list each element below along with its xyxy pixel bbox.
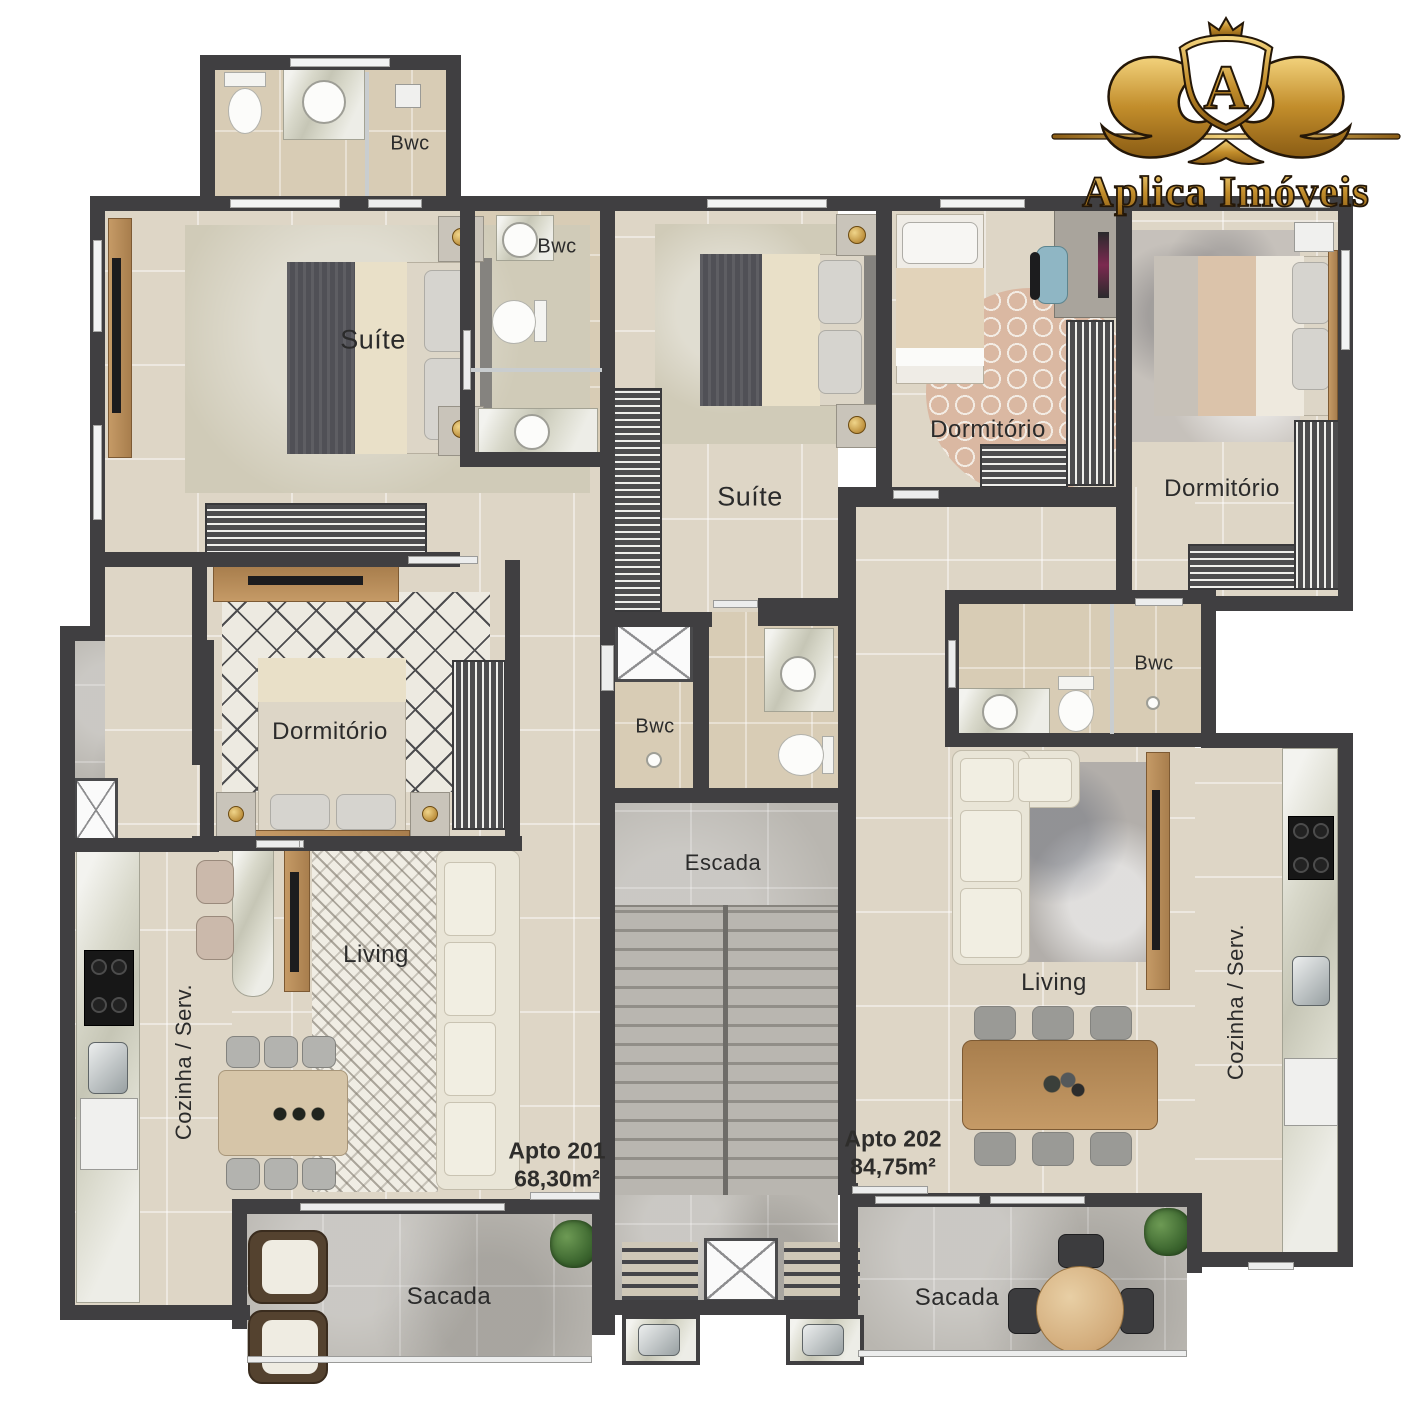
dining-chair (1090, 1006, 1132, 1040)
shower-head-icon (646, 752, 662, 768)
oven-icon (1284, 1058, 1338, 1126)
duct-shaft (74, 778, 118, 842)
wardrobe-dorm-201 (452, 660, 506, 830)
tank-sink-icon (802, 1324, 844, 1356)
brand-logo: A Aplica Imóveis (1048, 14, 1404, 220)
brand-crest-icon: A Aplica Imóveis (1048, 14, 1404, 220)
room-label-bwc: Bwc (390, 133, 429, 156)
toilet-icon (492, 300, 536, 344)
lamp-icon (848, 226, 866, 244)
pillow (1292, 262, 1330, 324)
window (707, 199, 827, 208)
sliding-door (990, 1196, 1085, 1204)
window (93, 425, 102, 520)
room-label-cozinha: Cozinha / Serv. (1223, 924, 1249, 1080)
window (1341, 250, 1350, 350)
shower-glass (1110, 604, 1114, 734)
wall (600, 196, 615, 1196)
room-label-living: Living (1021, 969, 1087, 997)
sofa-cushion (960, 758, 1014, 802)
desk-chair (1036, 246, 1068, 304)
chair-back (1030, 252, 1040, 300)
shower-glass (365, 72, 369, 196)
door (1248, 1262, 1294, 1270)
wall (232, 1199, 247, 1329)
lamp-icon (228, 806, 244, 822)
wall (505, 560, 520, 850)
pillow (270, 794, 330, 830)
kitchen-island-201 (232, 845, 274, 997)
unit-tag-apto-201: Apto 201 68,30m² (508, 1137, 605, 1192)
door (601, 645, 614, 691)
stool (196, 860, 234, 904)
plant-icon (1144, 1208, 1192, 1256)
toilet-tank (224, 72, 266, 87)
room-label-dormitorio: Dormitório (1164, 475, 1280, 503)
room-label-bwc: Bwc (1134, 653, 1173, 676)
headboard (1328, 250, 1338, 422)
window (940, 199, 1025, 208)
dining-chair (974, 1006, 1016, 1040)
wardrobe (1066, 320, 1114, 486)
wall (838, 487, 856, 1195)
door (256, 840, 300, 848)
room-label-suite: Suíte (717, 482, 783, 513)
tv-icon (112, 258, 121, 413)
wall (945, 733, 1215, 747)
nightstand (1294, 222, 1334, 252)
wall (74, 838, 219, 852)
patio-table (1036, 1266, 1124, 1354)
wall (200, 55, 215, 211)
brand-monogram: A (1204, 54, 1249, 122)
shower-head-icon (1146, 696, 1160, 710)
wall (840, 487, 1132, 507)
sofa-cushion (444, 1022, 496, 1096)
door (713, 600, 758, 608)
patio-chair (1058, 1234, 1104, 1268)
room-label-cozinha: Cozinha / Serv. (171, 984, 197, 1140)
wardrobe (980, 444, 1068, 488)
wall-fixture (395, 84, 421, 108)
cooktop-icon (1288, 816, 1334, 880)
bed-throw (1154, 256, 1202, 416)
dining-chair (1090, 1132, 1132, 1166)
pillow (818, 260, 862, 324)
sofa-cushion (1018, 758, 1072, 802)
dining-chair (1032, 1006, 1074, 1040)
stool (196, 916, 234, 960)
door (893, 490, 939, 499)
tv-icon (1152, 790, 1160, 950)
sacada-201-outer-rail (247, 1356, 592, 1363)
door (463, 330, 471, 390)
sofa-cushion (444, 862, 496, 936)
dining-chair (226, 1158, 260, 1190)
lamp-icon (848, 416, 866, 434)
sink-icon (502, 222, 538, 258)
door (530, 1192, 600, 1200)
toilet-icon (1058, 690, 1094, 732)
wall (60, 1305, 250, 1320)
tank-sink-icon (638, 1324, 680, 1356)
vent-louver (622, 1242, 698, 1300)
wall (1215, 596, 1353, 611)
kitchen-sink-icon (1292, 956, 1330, 1006)
dining-chair (264, 1036, 298, 1068)
room-label-sacada: Sacada (407, 1283, 491, 1311)
wardrobe-suite-201 (205, 503, 427, 555)
monitor-icon (1098, 232, 1109, 298)
sacada-202-outer-rail (858, 1350, 1187, 1357)
sofa-cushion (444, 1102, 496, 1176)
unit-area: 84,75m² (844, 1153, 941, 1181)
tv-icon (248, 576, 363, 585)
unit-name: Apto 202 (844, 1125, 941, 1153)
unit-area: 68,30m² (508, 1165, 605, 1193)
door (368, 199, 422, 208)
wall (200, 640, 214, 850)
sofa-cushion (960, 888, 1022, 958)
sliding-door (875, 1196, 980, 1204)
wall (1116, 196, 1132, 507)
wall (446, 55, 461, 211)
unit-name: Apto 201 (508, 1137, 605, 1165)
shower-stall (615, 622, 693, 682)
door (408, 556, 478, 564)
room-label-escada: Escada (685, 850, 761, 876)
toilet-icon (228, 88, 262, 134)
wardrobe (1294, 420, 1340, 590)
bed-blanket (355, 262, 407, 454)
table-decor (1042, 1072, 1086, 1098)
wall (1338, 746, 1353, 1266)
bed-blanket (762, 254, 820, 406)
dining-chair (264, 1158, 298, 1190)
dining-chair (302, 1158, 336, 1190)
toilet-icon (778, 734, 824, 776)
bed-duvet (287, 262, 359, 454)
patio-chair (1120, 1288, 1154, 1334)
wall (60, 626, 75, 1320)
pillow (902, 222, 978, 264)
elevator-shaft (704, 1238, 778, 1302)
room-label-bwc: Bwc (635, 716, 674, 739)
room-label-sacada: Sacada (915, 1284, 999, 1312)
bed-blanket (1198, 256, 1260, 416)
wall (600, 788, 853, 803)
shower-glass (470, 368, 602, 372)
window (230, 199, 340, 208)
dining-chair (974, 1132, 1016, 1166)
wall (1116, 507, 1132, 604)
wall (876, 196, 892, 496)
wall (1201, 590, 1216, 747)
plant-icon (550, 1220, 598, 1268)
room-label-living: Living (343, 941, 409, 969)
brand-wordmark: Aplica Imóveis (1082, 169, 1370, 216)
bed-duvet (700, 254, 766, 406)
stair-divider (723, 905, 728, 1195)
wall (460, 452, 615, 467)
wall (192, 836, 522, 851)
door (948, 640, 956, 688)
kitchen-sink-icon (88, 1042, 128, 1094)
sink-icon (982, 694, 1018, 730)
room-label-bwc: Bwc (537, 236, 576, 259)
window (290, 58, 390, 67)
sink-icon (302, 80, 346, 124)
wall (758, 598, 854, 626)
wall (693, 620, 709, 795)
room-label-dormitorio: Dormitório (272, 718, 388, 746)
dining-chair (302, 1036, 336, 1068)
chair-cushion (262, 1320, 318, 1374)
toilet-tank (1058, 676, 1094, 690)
lamp-icon (422, 806, 438, 822)
wardrobe (1188, 544, 1296, 590)
headboard (864, 250, 876, 410)
cooktop-icon (84, 950, 134, 1026)
chair-cushion (262, 1240, 318, 1294)
bed-fold (258, 658, 406, 702)
room-label-suite: Suíte (340, 325, 406, 356)
table-decor (272, 1106, 326, 1122)
tv-icon (290, 872, 299, 972)
door (852, 1186, 928, 1194)
pillow (336, 794, 396, 830)
pillow (818, 330, 862, 394)
sofa-cushion (444, 942, 496, 1016)
sink-icon (780, 656, 816, 692)
sliding-door (300, 1203, 505, 1211)
wall (840, 1183, 858, 1305)
sofa-cushion (960, 810, 1022, 882)
bed-band (896, 348, 984, 366)
wall (592, 1300, 858, 1315)
door (1135, 598, 1183, 606)
oven-icon (80, 1098, 138, 1170)
pillow (1292, 328, 1330, 390)
dining-chair (1032, 1132, 1074, 1166)
unit-tag-apto-202: Apto 202 84,75m² (844, 1125, 941, 1180)
wall (90, 552, 460, 567)
sink-icon (514, 414, 550, 450)
wall (1201, 733, 1353, 748)
room-label-dormitorio: Dormitório (930, 416, 1046, 444)
dining-chair (226, 1036, 260, 1068)
floor-plan-canvas: Bwc Bwc Suíte Suíte Dormitório Dormitóri… (0, 0, 1414, 1414)
window (93, 240, 102, 332)
